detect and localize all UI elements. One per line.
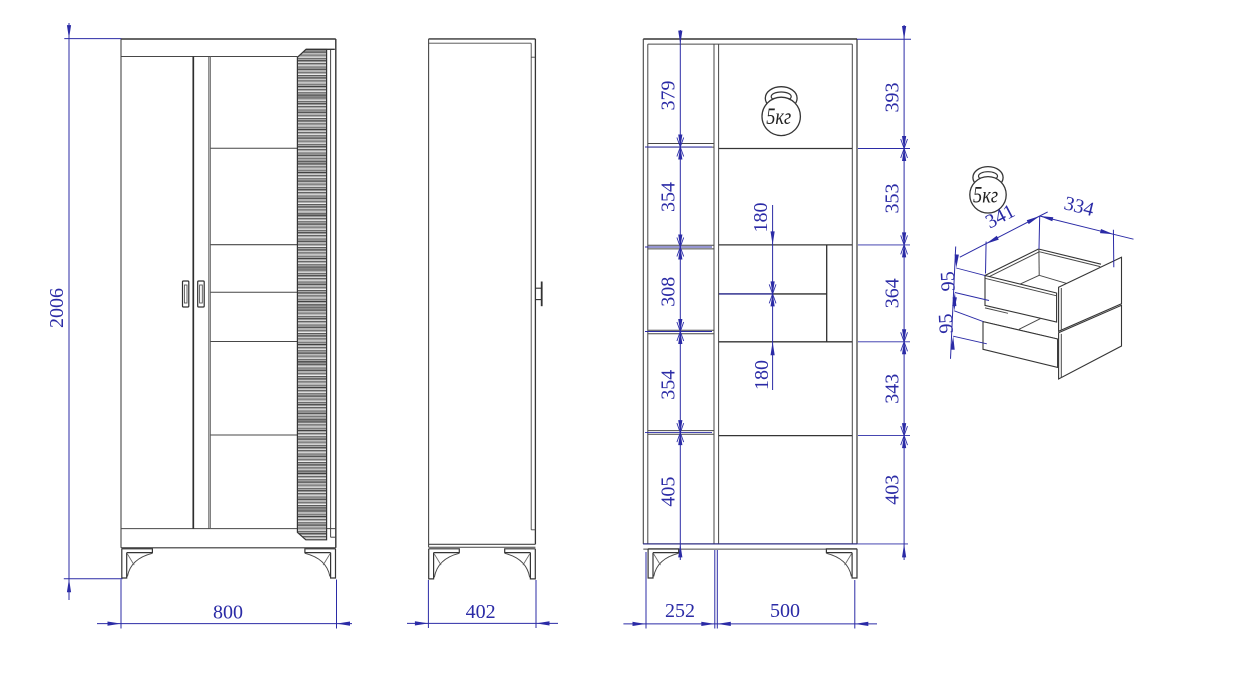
svg-text:343: 343 bbox=[882, 374, 904, 404]
svg-text:500: 500 bbox=[770, 600, 800, 622]
svg-text:95: 95 bbox=[937, 271, 960, 292]
svg-text:308: 308 bbox=[658, 277, 680, 307]
svg-text:252: 252 bbox=[665, 600, 695, 622]
svg-text:95: 95 bbox=[935, 313, 958, 334]
svg-text:393: 393 bbox=[882, 83, 904, 113]
svg-text:403: 403 bbox=[882, 475, 904, 505]
svg-text:353: 353 bbox=[882, 184, 904, 214]
svg-text:402: 402 bbox=[466, 601, 496, 623]
svg-text:354: 354 bbox=[658, 370, 680, 400]
svg-text:364: 364 bbox=[882, 278, 904, 308]
svg-text:379: 379 bbox=[658, 81, 680, 111]
svg-text:800: 800 bbox=[213, 601, 243, 623]
svg-text:405: 405 bbox=[658, 477, 680, 507]
svg-text:180: 180 bbox=[751, 360, 773, 390]
svg-text:2006: 2006 bbox=[46, 288, 68, 328]
svg-text:354: 354 bbox=[658, 182, 680, 212]
svg-text:5кг: 5кг bbox=[973, 183, 998, 208]
svg-text:180: 180 bbox=[750, 203, 772, 233]
svg-text:5кг: 5кг bbox=[766, 104, 791, 129]
